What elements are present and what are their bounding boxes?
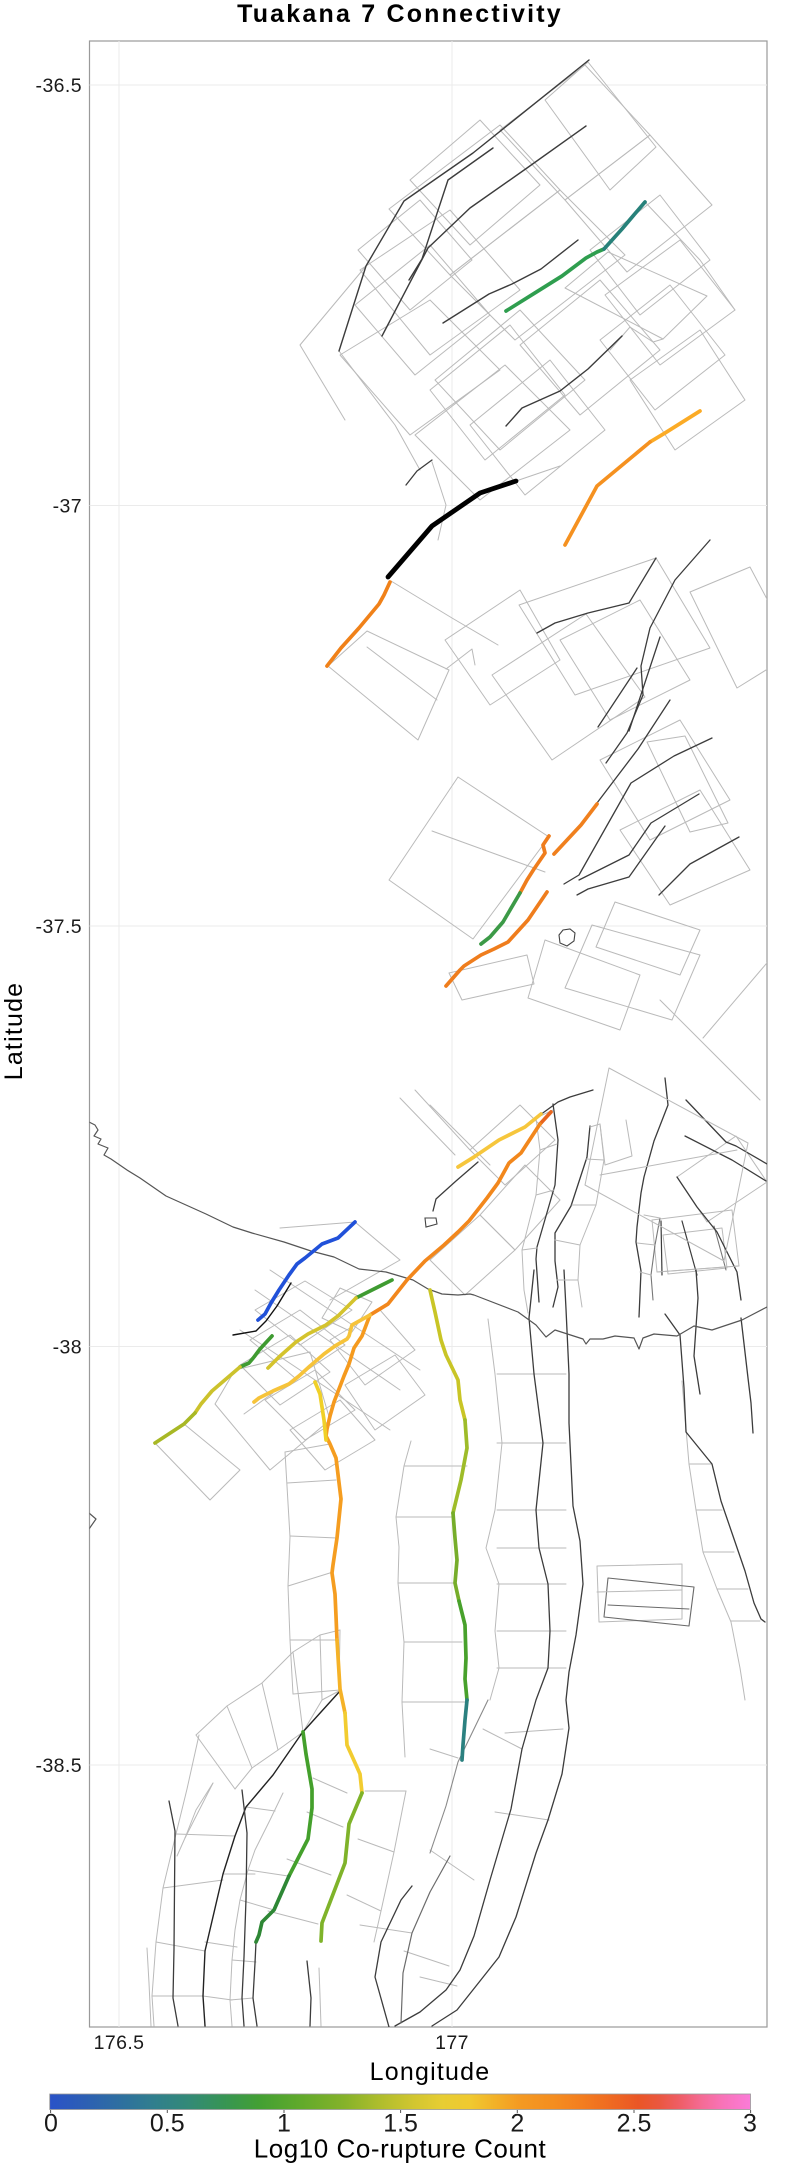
svg-text:-37: -37 bbox=[53, 496, 82, 518]
svg-text:-37.5: -37.5 bbox=[36, 916, 82, 938]
svg-text:2.5: 2.5 bbox=[617, 2110, 652, 2138]
svg-text:177: 177 bbox=[435, 2032, 469, 2054]
svg-text:-38: -38 bbox=[53, 1337, 82, 1359]
svg-text:Tuakana 7 Connectivity: Tuakana 7 Connectivity bbox=[237, 0, 563, 28]
svg-text:Latitude: Latitude bbox=[0, 982, 28, 1081]
svg-text:Longitude: Longitude bbox=[370, 2058, 491, 2086]
svg-text:-38.5: -38.5 bbox=[36, 1755, 82, 1777]
svg-text:Log10 Co-rupture Count: Log10 Co-rupture Count bbox=[254, 2134, 547, 2164]
svg-text:-36.5: -36.5 bbox=[36, 75, 82, 97]
svg-text:176.5: 176.5 bbox=[94, 2032, 145, 2054]
svg-text:0.5: 0.5 bbox=[150, 2110, 185, 2138]
svg-text:3: 3 bbox=[743, 2110, 757, 2138]
svg-text:0: 0 bbox=[44, 2110, 58, 2138]
